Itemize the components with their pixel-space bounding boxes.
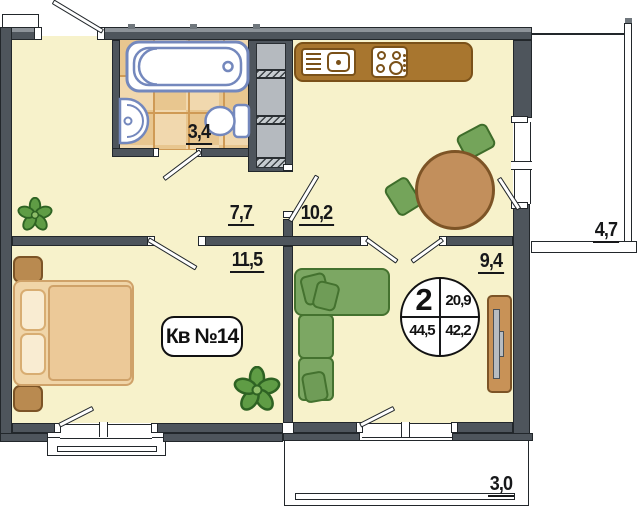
stove-knob bbox=[403, 69, 406, 72]
wall-tick bbox=[253, 24, 260, 29]
wall-tick bbox=[128, 24, 135, 29]
shaft-hatch bbox=[256, 158, 286, 168]
sink-drainboard-line bbox=[306, 53, 321, 55]
nightstand bbox=[13, 385, 43, 412]
wall-segment bbox=[283, 246, 293, 423]
wall-segment bbox=[199, 148, 253, 157]
wall-segment bbox=[12, 423, 60, 433]
wall-segment bbox=[443, 236, 513, 246]
wall-segment bbox=[0, 433, 48, 442]
balcony-bottom-rail bbox=[295, 493, 515, 500]
shaft-hatch bbox=[256, 70, 286, 78]
area-label-balcony-right: 4,7 bbox=[593, 220, 619, 243]
bedroom-window-sash bbox=[99, 422, 108, 437]
wall-segment bbox=[0, 27, 12, 442]
wall-segment bbox=[513, 40, 532, 118]
sink-drainboard-line bbox=[306, 58, 321, 60]
stove-icon bbox=[371, 46, 408, 78]
balcony-right-rail bbox=[624, 23, 632, 245]
bed-blanket bbox=[48, 285, 132, 381]
wall-segment bbox=[103, 27, 532, 40]
balcony-right-top-line bbox=[532, 33, 628, 35]
total-area-value: 44,5 bbox=[405, 322, 439, 339]
door-jamb bbox=[151, 423, 158, 433]
door-jamb bbox=[153, 148, 159, 157]
bathtub-icon bbox=[125, 40, 250, 93]
stove-burner bbox=[376, 64, 385, 73]
wardrobe-handle bbox=[499, 331, 504, 357]
apartment-number-label: Кв №14 bbox=[161, 316, 243, 357]
shaft-block bbox=[256, 124, 286, 158]
kitchen-window-sash bbox=[511, 161, 532, 170]
area-label-balcony-bottom: 3,0 bbox=[488, 474, 514, 497]
area-label-hallway: 7,7 bbox=[228, 203, 254, 226]
wall-segment bbox=[452, 433, 533, 441]
sofa-section bbox=[298, 314, 334, 359]
door-jamb bbox=[283, 164, 293, 171]
plant-icon bbox=[17, 197, 53, 233]
wall-segment bbox=[199, 236, 367, 246]
sofa-cushion bbox=[301, 370, 330, 404]
kitchen-area-value: 20,9 bbox=[441, 292, 475, 309]
stove-burner bbox=[377, 51, 386, 60]
area-label-living-room: 9,4 bbox=[478, 251, 504, 274]
door-jamb bbox=[198, 236, 206, 246]
stove-knob bbox=[403, 64, 406, 67]
stove-knob bbox=[403, 54, 406, 57]
wall-segment bbox=[12, 236, 150, 246]
wall-segment bbox=[452, 422, 513, 433]
wall-segment bbox=[112, 148, 157, 157]
stove-knob bbox=[403, 59, 406, 62]
pillow bbox=[20, 289, 46, 331]
area-label-bedroom: 11,5 bbox=[230, 250, 264, 273]
sink-drain-dot bbox=[336, 60, 341, 65]
floor-plan: 3,4 7,7 10,2 11,5 9,4 4,7 3,0 Кв №14 2 2… bbox=[0, 0, 637, 508]
wall-segment bbox=[163, 433, 283, 442]
sink-drainboard-line bbox=[306, 68, 321, 70]
area-label-bathroom: 3,4 bbox=[186, 122, 212, 145]
door-jamb bbox=[511, 116, 528, 123]
wall-tick bbox=[190, 24, 197, 29]
dining-table bbox=[415, 150, 495, 230]
shaft-block bbox=[256, 43, 286, 70]
apartment-info-circle: 2 20,9 44,5 42,2 bbox=[400, 277, 480, 357]
balcony-right-slab bbox=[531, 241, 637, 253]
bedroom-window-ledge-rail bbox=[57, 446, 157, 452]
rooms-count: 2 bbox=[408, 282, 438, 318]
washbasin-icon bbox=[114, 96, 156, 146]
plant-icon bbox=[233, 366, 281, 414]
shaft-hatch bbox=[256, 116, 286, 124]
sink-drainboard-line bbox=[306, 63, 321, 65]
entrance-door-leaf bbox=[52, 0, 104, 34]
living-window-sash bbox=[401, 422, 410, 437]
door-jamb bbox=[34, 27, 42, 40]
shaft-block bbox=[256, 78, 286, 116]
nightstand bbox=[13, 256, 43, 283]
apartment-number-text: Кв №14 bbox=[166, 325, 238, 349]
door-jamb bbox=[451, 422, 458, 433]
stove-burner bbox=[389, 61, 403, 75]
pillow bbox=[20, 333, 46, 375]
wall-segment bbox=[513, 204, 530, 441]
wall-segment bbox=[152, 423, 283, 433]
wall-segment bbox=[283, 433, 360, 441]
stove-burner bbox=[392, 51, 401, 60]
living-area-value: 42,2 bbox=[441, 322, 475, 339]
area-label-kitchen: 10,2 bbox=[299, 203, 334, 226]
wall-segment bbox=[293, 422, 362, 433]
